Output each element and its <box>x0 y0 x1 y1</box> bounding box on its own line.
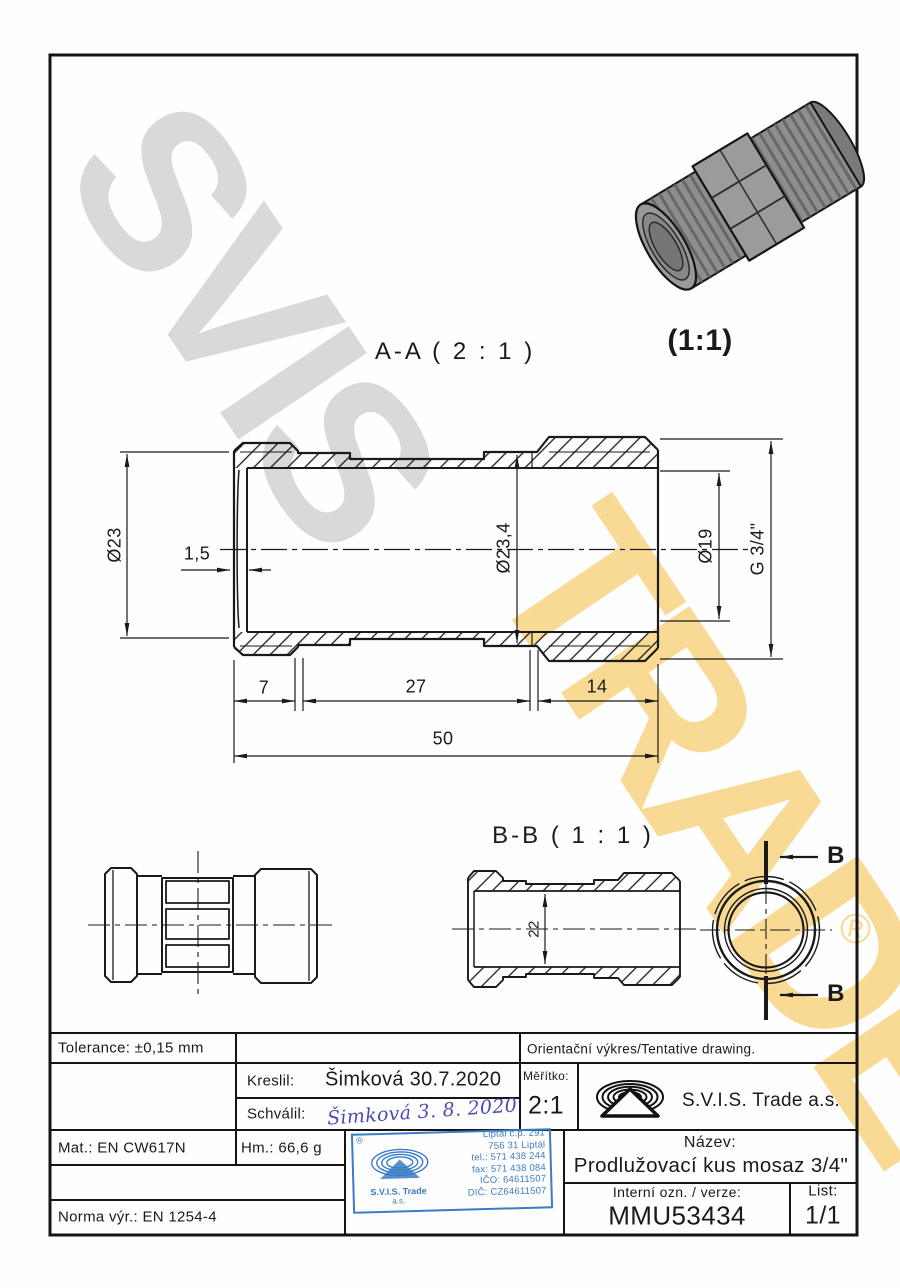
list-label: List: <box>808 1183 838 1200</box>
dim-14: 14 <box>587 677 608 698</box>
tentative-drawing-note: Orientační výkres/Tentative drawing. <box>527 1042 755 1057</box>
cut-marker-b-bottom: B <box>827 980 845 1008</box>
tolerance-note: Tolerance: ±0,15 mm <box>58 1040 204 1057</box>
view-label-aa: A-A ( 2 : 1 ) <box>375 338 535 366</box>
dim-7: 7 <box>259 678 269 699</box>
stamp-address: Liptál č.p. 291 756 31 Liptál tel.: 571 … <box>466 1127 547 1199</box>
schvalil-label: Schválil: <box>247 1106 306 1123</box>
interni-value: MMU53434 <box>608 1201 746 1232</box>
mass-note: Hm.: 66,6 g <box>241 1140 322 1157</box>
stamp-registered-icon: ® <box>356 1135 363 1145</box>
meritko-value: 2:1 <box>528 1092 564 1121</box>
interni-label: Interní ozn. / verze: <box>613 1184 741 1200</box>
dim-wall-1-5: 1,5 <box>184 544 210 565</box>
kreslil-label: Kreslil: <box>247 1073 294 1090</box>
meritko-label: Měřítko: <box>523 1069 569 1083</box>
stamp-logo-icon <box>355 1145 444 1187</box>
section-view-bb <box>452 871 700 987</box>
dim-dia23: Ø23 <box>105 527 126 562</box>
dim-thread-g34: G 3/4" <box>748 523 769 576</box>
dimension-lines-aa <box>120 439 783 763</box>
view-label-bb: B-B ( 1 : 1 ) <box>492 822 654 850</box>
nazev-value: Prodlužovací kus mosaz 3/4" <box>574 1154 848 1178</box>
material-note: Mat.: EN CW617N <box>58 1140 186 1157</box>
stamp-address-line: DIČ: CZ64611507 <box>468 1185 547 1199</box>
cut-marker-b-top: B <box>827 842 845 870</box>
view-label-iso: (1:1) <box>667 324 732 358</box>
kreslil-value: Šimková 30.7.2020 <box>325 1069 501 1092</box>
end-view-circle <box>700 841 832 1020</box>
company-name: S.V.I.S. Trade a.s. <box>682 1090 840 1112</box>
norma-note: Norma výr.: EN 1254-4 <box>58 1209 217 1226</box>
dim-dia19: Ø19 <box>696 528 717 563</box>
dim-27: 27 <box>406 677 427 698</box>
stamp-company-suffix: a.s. <box>361 1195 437 1206</box>
dim-dia23-4: Ø23,4 <box>494 522 515 573</box>
nazev-label: Název: <box>684 1134 736 1152</box>
company-logo-icon <box>597 1081 663 1116</box>
iso-view <box>621 90 877 304</box>
company-stamp: ® Liptál č.p. 291 756 31 Liptál tel.: 57… <box>351 1128 553 1214</box>
front-view <box>88 851 332 999</box>
dim-22: 22 <box>526 920 543 938</box>
dim-50: 50 <box>433 729 454 750</box>
list-value: 1/1 <box>805 1202 841 1231</box>
drawing-sheet: SVIS TRADE ® <box>0 0 900 1288</box>
